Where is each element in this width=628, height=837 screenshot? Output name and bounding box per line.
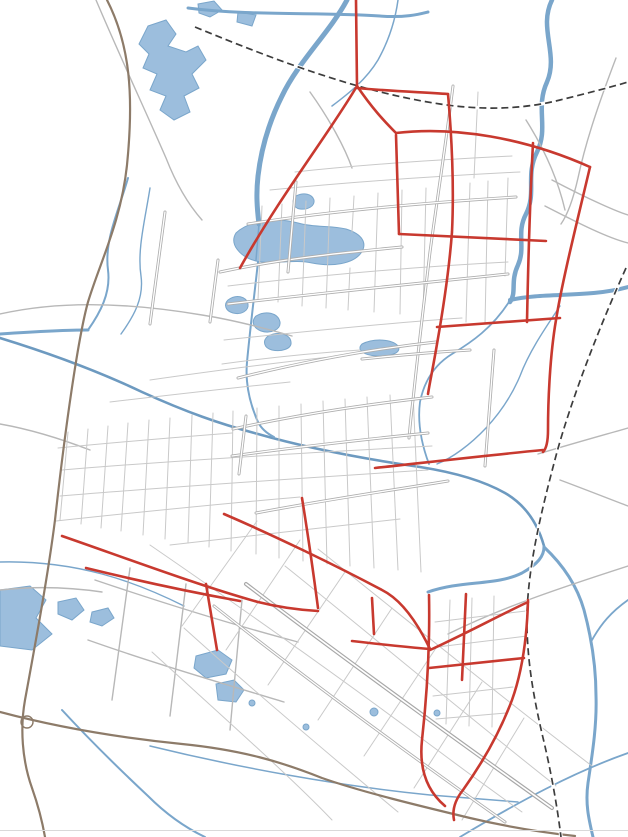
- road-zhongxing-avenue: [233, 397, 432, 429]
- minor-roads-layer: [56, 92, 592, 820]
- southeast-river: [544, 547, 596, 837]
- city-planning-map: [0, 0, 628, 837]
- railway-highspeed: [195, 27, 628, 108]
- red-dongraocheng-road: [543, 167, 590, 452]
- map-canvas: [0, 0, 628, 837]
- road-luyu-avenue: [228, 274, 508, 304]
- road-s345: [538, 428, 628, 454]
- reservoir: [139, 20, 206, 120]
- red-fazhan-avenue: [224, 514, 430, 649]
- road-tianmen-avenue: [409, 86, 453, 438]
- road-suiyue-expressway: [22, 0, 130, 837]
- road-chuangye-avenue: [256, 481, 448, 513]
- road-g348-east: [448, 566, 628, 634]
- road-jieguan: [239, 416, 246, 474]
- red-gaotie-zhanqian-avenue: [396, 131, 590, 167]
- water-layer: [0, 0, 628, 837]
- road-jianghan: [150, 212, 165, 324]
- road-wutian-expressway: [0, 712, 575, 836]
- railway-layer: [195, 27, 628, 837]
- road-yanglinhe: [485, 350, 494, 466]
- road-tianxian-avenue: [246, 584, 552, 808]
- red-jingdong-road: [421, 595, 445, 806]
- road-zhuangyuan: [210, 260, 218, 322]
- road-huanbei-avenue: [248, 197, 516, 224]
